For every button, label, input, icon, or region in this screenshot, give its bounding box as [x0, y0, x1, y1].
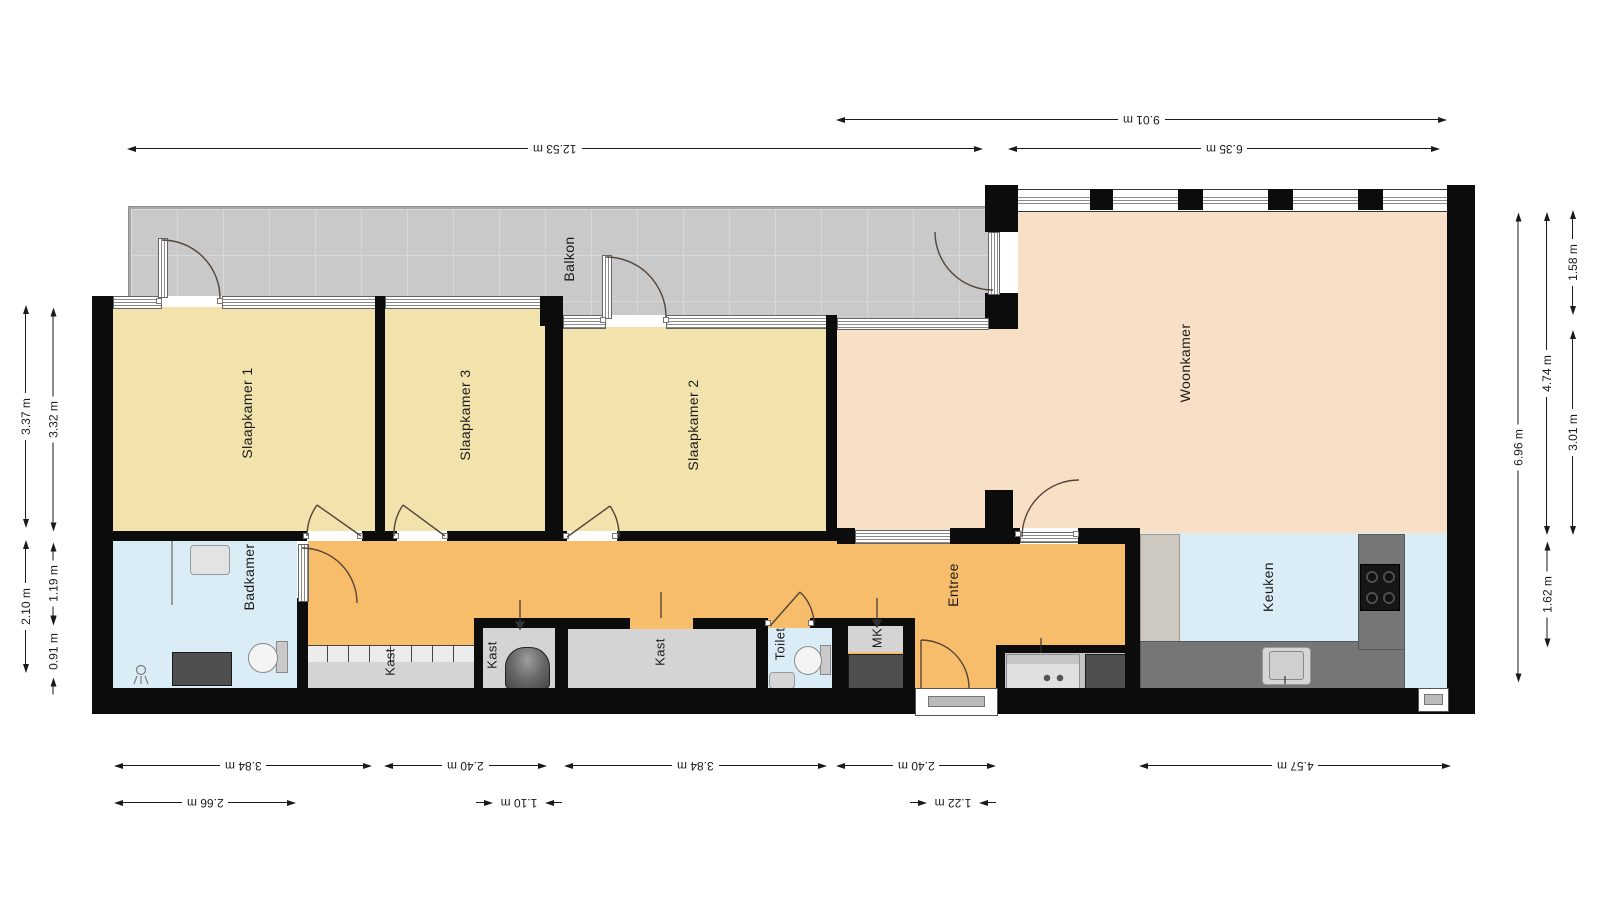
hinge [393, 533, 399, 539]
bottom-right-window-bar [1424, 694, 1443, 705]
dimension-woonkamer-lower-height: 3.01 m [1566, 330, 1579, 535]
hinge [765, 620, 771, 626]
dimension-kast-width: 1.10 m [476, 796, 562, 809]
outer-wall-bottom [92, 688, 1475, 714]
wall-sk2-woonkamer [826, 315, 837, 541]
hinge [357, 533, 363, 539]
slaapkamer-2-label: Slaapkamer 2 [685, 379, 701, 470]
mk-dark-block [848, 654, 905, 690]
hinge [663, 317, 669, 323]
outer-wall-left [92, 296, 113, 714]
hinge [303, 533, 309, 539]
dimension-plan-width: 12.53 m [127, 142, 983, 155]
sk1-balcony-door-leaf [158, 238, 168, 298]
hinge [442, 533, 448, 539]
hinge [612, 533, 618, 539]
dimension-sk1-width: 3.84 m [114, 759, 372, 772]
keuken-tall-cabinet [1140, 534, 1180, 644]
woonkamer-wall-stub [985, 490, 1013, 540]
sk1-door-gap [307, 531, 362, 541]
hinge [1015, 531, 1021, 537]
mk-top-wall [848, 618, 903, 626]
slaapkamer-1-label: Slaapkamer 1 [239, 367, 255, 458]
washer-nook-left-wall [996, 645, 1005, 688]
dimension-woonkamer-height: 4.74 m [1540, 212, 1553, 535]
woonkamer-label: Woonkamer [1177, 324, 1193, 403]
toilet-bowl-icon [794, 646, 822, 675]
stove-icon [1360, 564, 1400, 611]
hinge [1073, 531, 1079, 537]
kast-b-label: Kast [485, 641, 500, 669]
front-door-threshold-bar [928, 696, 985, 707]
toilet-label: Toilet [773, 628, 788, 661]
boiler-icon [505, 647, 550, 689]
kast-b-top-wall [474, 618, 564, 628]
corridor-wall-3 [447, 531, 567, 541]
balkon-label: Balkon [561, 236, 577, 281]
kast-a-label: Kast [383, 648, 398, 676]
dimension-sk2-width: 3.84 m [564, 759, 827, 772]
dimension-right-total-height: 6.96 m [1512, 213, 1525, 683]
north-pillar-2 [1178, 189, 1203, 210]
wall-kast-a-b [474, 618, 483, 688]
hinge [156, 298, 162, 304]
dimension-right-section-width: 9.01 m [836, 113, 1447, 126]
outer-wall-right [1447, 185, 1475, 714]
entree-label: Entree [945, 563, 961, 607]
dimension-badkamer-width: 2.66 m [114, 796, 296, 809]
north-pillar-4 [1358, 189, 1383, 210]
woonkamer-floor-main [1018, 210, 1447, 534]
wall-toilet-mk [832, 618, 848, 688]
badkamer-sink-icon [190, 545, 230, 575]
hinge [808, 620, 814, 626]
mk-right-wall [903, 618, 915, 688]
sk3-door-gap [397, 531, 447, 541]
wall-sk1-sk3 [375, 296, 385, 541]
hinge [217, 298, 223, 304]
kast-c-top-wall-left [568, 618, 630, 629]
hinge [600, 317, 606, 323]
washer-nook-top-wall [996, 645, 1133, 653]
kitchen-sink-basin [1269, 651, 1304, 680]
dimension-keuken-height: 1.62 m [1541, 542, 1554, 648]
slaapkamer-3-label: Slaapkamer 3 [457, 369, 473, 460]
woonkamer-door-leaf [1020, 532, 1080, 543]
woonkamer-south-wall-3 [1078, 528, 1125, 544]
dimension-sk3-width: 2.40 m [384, 759, 547, 772]
corridor-wall-1 [113, 531, 307, 541]
dimension-sk-height: 3.37 m [19, 305, 32, 528]
dimension-sk-inner-height: 3.32 m [47, 308, 60, 532]
kast-c-top-wall-right [693, 618, 756, 629]
woonkamer-south-wall-1 [837, 528, 855, 544]
wall-kast-b-c [555, 618, 568, 688]
keuken-label: Keuken [1260, 562, 1276, 612]
dimension-balkon-depth: 1.58 m [1566, 210, 1579, 315]
balcony-door-pillar [985, 293, 1018, 329]
north-pillar-3 [1268, 189, 1293, 210]
floor-plan-canvas: Slaapkamer 1 Slaapkamer 3 Slaapkamer 2 W… [0, 0, 1600, 900]
shower-partition [171, 541, 173, 605]
washing-machine-icon [1006, 654, 1080, 689]
badkamer-toilet-bowl-icon [248, 643, 278, 673]
dimension-entree-width: 2.40 m [836, 759, 996, 772]
woonkamer-south-window [855, 530, 952, 544]
kast-c-label: Kast [653, 638, 668, 666]
badkamer-right-wall [297, 598, 308, 688]
badkamer-label: Badkamer [241, 543, 257, 610]
corridor-wall-2 [362, 531, 397, 541]
hinge [563, 533, 569, 539]
dimension-lower-left-height: 2.10 m [19, 540, 32, 673]
sk3-window [385, 296, 542, 309]
dimension-shower-height: 0.91 m [47, 609, 60, 695]
sk2-door-gap [567, 531, 617, 541]
badkamer-door-leaf [298, 544, 309, 602]
shower-block [172, 652, 232, 686]
north-pillar-1 [1090, 189, 1113, 210]
corridor-wall-4 [617, 531, 837, 541]
sk2-balcony-door-leaf [602, 255, 612, 319]
wall-sk3-sk2 [545, 300, 563, 541]
dimension-woonkamer-width: 6.35 m [1008, 142, 1440, 155]
balcony-woonkamer-door-leaf [988, 232, 1000, 295]
toilet-sink-icon [769, 672, 795, 689]
wall-kast-c-toilet [756, 618, 768, 688]
dimension-keuken-width: 4.57 m [1139, 759, 1451, 772]
nw-corner-pillar [985, 185, 1018, 232]
sk2-window-right [666, 315, 828, 329]
sk1-window-right [222, 296, 377, 309]
sk1-window-left [113, 296, 162, 309]
dimension-voordeur-width: 1.22 m [910, 796, 996, 809]
mk-label: MK [870, 628, 885, 648]
woonkamer-balcony-window [837, 318, 989, 330]
wall-entree-keuken [1125, 528, 1140, 688]
